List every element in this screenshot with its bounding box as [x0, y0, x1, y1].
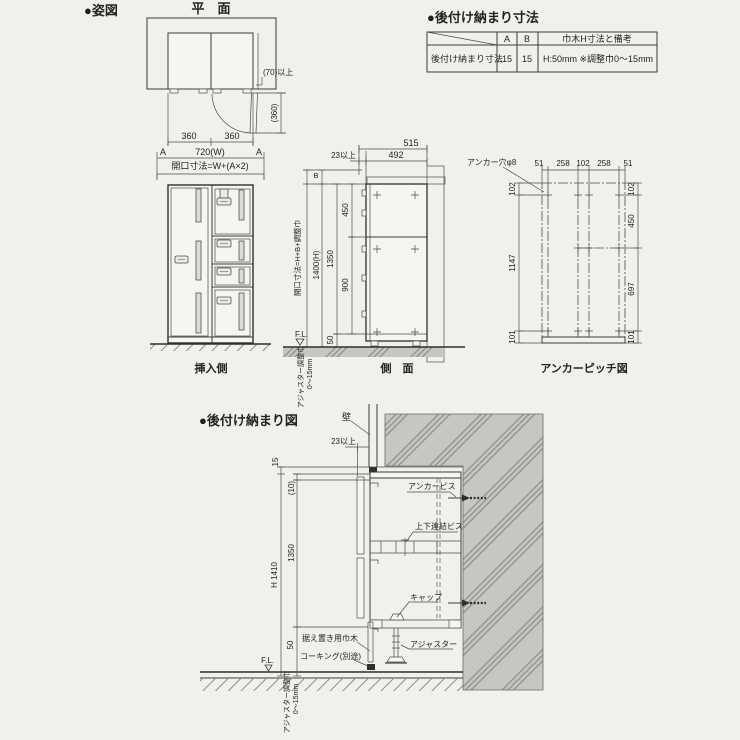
front-view: 挿入側 — [150, 185, 271, 375]
col-header-note: 巾木H寸法と備考 — [562, 33, 632, 44]
side-view: 515 23以上 492 開口寸法=H+B+調整巾 B 1400(H) 1350… — [283, 138, 465, 408]
anchor-left-102: 102 — [508, 182, 517, 196]
anchor-dim-51-left: 51 — [535, 159, 544, 168]
side-dim-900: 900 — [341, 278, 350, 292]
front-view-label: 挿入側 — [195, 361, 228, 375]
table-diagonal — [427, 32, 497, 45]
side-dim-450: 450 — [341, 203, 350, 217]
caulking-symbol — [367, 664, 375, 670]
detail-section: ●後付け納まり図 壁 — [199, 404, 543, 733]
detail-dim-15: 15 — [271, 457, 280, 466]
anchor-screw-leader — [407, 492, 456, 497]
side-dim-b: B — [313, 171, 318, 180]
side-fl-triangle — [296, 339, 304, 345]
caulking-label: コーキング(別途) — [300, 651, 361, 661]
plan-dim-360-right: 360 — [224, 131, 239, 141]
anchor-dim-258-left: 258 — [556, 159, 570, 168]
side-dim-1400: 1400(H) — [312, 250, 321, 279]
detail-dim-1350: 1350 — [287, 544, 296, 562]
anchor-right-dimensions — [623, 183, 642, 343]
detail-adjuster-range: 0〜15mm — [293, 684, 300, 715]
detail-dim-h1410: H 1410 — [270, 562, 279, 588]
lower-door-panel — [357, 558, 364, 618]
detail-fl-label: F.L. — [261, 656, 274, 665]
side-cabinet-body — [366, 184, 427, 341]
cap-label: キャップ — [410, 593, 442, 602]
side-dim-515: 515 — [403, 138, 418, 148]
row-label: 後付け納まり寸法 — [431, 53, 503, 64]
adjuster-symbol — [385, 628, 407, 663]
anchor-top-dimensions — [542, 166, 625, 183]
plan-door-swing-dim: (360) — [270, 103, 279, 122]
door-swing-arc — [212, 94, 251, 133]
anchor-panel-outline — [542, 183, 625, 343]
plan-dim-360-left: 360 — [181, 131, 196, 141]
anchor-left-101: 101 — [508, 330, 517, 344]
anchor-dim-51-right: 51 — [624, 159, 633, 168]
joint-row — [370, 538, 461, 556]
side-view-label: 側 面 — [380, 361, 414, 375]
anchor-pitch-diagram: 51 258 102 258 51 アンカー穴φ8 102 1147 101 1… — [467, 157, 642, 375]
detail-dim-50: 50 — [286, 640, 295, 649]
value-note: H:50mm ※調整巾0〜15mm — [543, 53, 653, 64]
front-ground-hatch — [150, 344, 271, 351]
unit-top-panel — [370, 472, 461, 478]
plan-view: 360 360 A 720(W) A 開口寸法=W+(A×2) (70)以上 (… — [147, 18, 293, 180]
anchor-hole-note: アンカー穴φ8 — [467, 157, 517, 167]
joint-screw-label: 上下連結ビス — [415, 521, 463, 531]
detail-fl-triangle — [265, 665, 272, 671]
col-header-a: A — [504, 34, 510, 44]
anchor-right-697: 697 — [627, 282, 636, 296]
anchor-right-101: 101 — [627, 330, 636, 344]
adjuster-label: アジャスター — [410, 640, 457, 649]
anchor-right-102: 102 — [627, 182, 636, 196]
detail-title: ●後付け納まり図 — [199, 413, 298, 428]
side-adjuster-note: アジャスター調整巾 — [296, 346, 305, 408]
door-hooks — [370, 483, 378, 564]
plan-view-title: 平 面 — [191, 1, 230, 16]
plan-dim-720: 720(W) — [195, 147, 225, 157]
side-adjuster-range: 0〜15mm — [307, 359, 314, 390]
upper-door-panel — [357, 477, 364, 554]
spec-table-title: ●後付け納まり寸法 — [427, 10, 539, 25]
side-dim-492: 492 — [388, 150, 403, 160]
side-dim-23: 23以上 — [331, 151, 356, 160]
wall-label: 壁 — [342, 411, 351, 422]
detail-adjuster-note: アジャスター調整巾 — [282, 671, 291, 733]
col-header-b: B — [524, 34, 530, 44]
detail-dim-10: (10) — [287, 481, 296, 496]
plan-opening-formula: 開口寸法=W+(A×2) — [171, 160, 248, 171]
plan-open-door — [250, 93, 258, 133]
side-dim-50: 50 — [326, 335, 335, 344]
detail-dim-23-lines — [345, 443, 369, 476]
value-a: 15 — [502, 54, 512, 64]
detail-dim-23: 23以上 — [331, 437, 356, 446]
joint-screw-leader — [406, 532, 458, 542]
anchor-left-dimensions — [515, 183, 544, 343]
anchor-pitch-label: アンカーピッチ図 — [540, 361, 628, 375]
side-opening-formula: 開口寸法=H+B+調整巾 — [292, 220, 302, 296]
side-dim-1350: 1350 — [326, 250, 335, 268]
wall-leader — [351, 421, 370, 435]
plan-dim-a-right: A — [256, 147, 262, 157]
cap-leader — [397, 602, 438, 617]
plan-clearance-70: (70)以上 — [263, 68, 293, 77]
value-b: 15 — [522, 54, 532, 64]
side-wall-hatch — [427, 166, 444, 362]
anchor-right-450: 450 — [627, 214, 636, 228]
anchor-dim-102-center: 102 — [576, 159, 590, 168]
side-soffit-band — [367, 177, 445, 184]
side-ground-band — [283, 347, 444, 357]
side-fl-label: F.L. — [295, 330, 308, 339]
detail-ground-hatch — [200, 678, 463, 691]
plan-dim-a-left: A — [160, 147, 166, 157]
technical-drawing-sheet: ●姿図 平 面 ●後付け納まり寸法 A B 巾木H寸法と備考 後付け納まり寸法 … — [0, 0, 740, 740]
bottom-panel — [370, 620, 461, 628]
anchor-dim-258-right: 258 — [597, 159, 611, 168]
anchor-screw-label: アンカービス — [408, 482, 456, 491]
anchor-left-1147: 1147 — [508, 254, 517, 272]
skirting-label: 据え置き用巾木 — [302, 633, 358, 643]
figure-title: ●姿図 — [84, 3, 118, 18]
anchor-hole-marks — [544, 191, 623, 335]
spec-table: ●後付け納まり寸法 A B 巾木H寸法と備考 後付け納まり寸法 15 15 H:… — [427, 10, 657, 72]
